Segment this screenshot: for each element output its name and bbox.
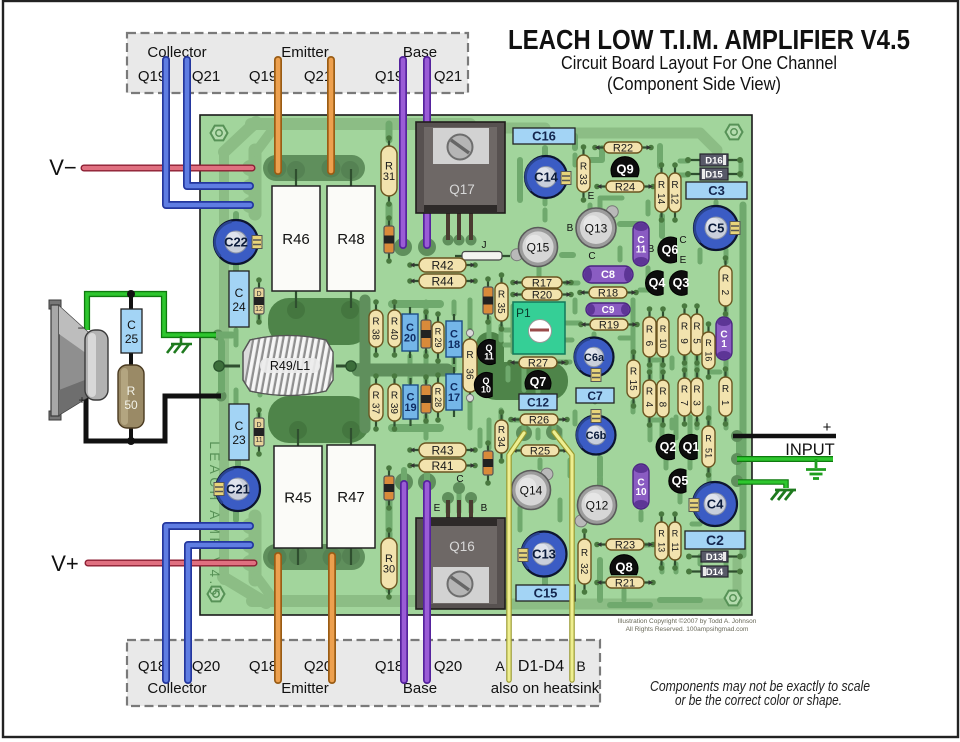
svg-text:Q19: Q19 <box>375 68 403 85</box>
svg-text:15: 15 <box>627 380 638 392</box>
svg-text:R22: R22 <box>613 142 633 154</box>
svg-text:V−: V− <box>49 155 77 180</box>
svg-text:R49/L1: R49/L1 <box>270 359 310 373</box>
svg-text:or be the correct color or sha: or be the correct color or shape. <box>675 693 842 709</box>
svg-text:37: 37 <box>370 403 381 415</box>
svg-text:R20: R20 <box>532 289 552 301</box>
svg-text:Q15: Q15 <box>527 240 550 254</box>
svg-text:R: R <box>646 324 653 335</box>
svg-text:C: C <box>456 474 463 485</box>
svg-text:Q5: Q5 <box>672 474 689 488</box>
svg-text:20: 20 <box>404 333 416 345</box>
svg-text:+: + <box>823 419 832 436</box>
svg-text:C4: C4 <box>707 497 724 512</box>
svg-text:Q14: Q14 <box>520 483 543 497</box>
svg-text:29: 29 <box>433 337 443 347</box>
svg-text:Q19: Q19 <box>249 68 277 85</box>
svg-text:R42: R42 <box>431 258 453 272</box>
svg-text:R: R <box>646 386 653 397</box>
svg-text:A: A <box>495 658 505 674</box>
svg-text:R: R <box>660 324 667 334</box>
svg-text:Collector: Collector <box>147 44 206 61</box>
svg-text:6: 6 <box>643 341 654 347</box>
svg-text:R17: R17 <box>532 277 552 289</box>
svg-text:12: 12 <box>669 193 680 205</box>
svg-text:D14: D14 <box>706 567 724 578</box>
svg-text:7: 7 <box>678 400 689 406</box>
svg-text:Q1: Q1 <box>683 440 700 454</box>
svg-text:C14: C14 <box>534 170 559 185</box>
svg-text:14: 14 <box>655 193 666 205</box>
svg-text:R18: R18 <box>598 287 618 299</box>
svg-text:5: 5 <box>691 338 702 344</box>
svg-text:1: 1 <box>721 339 727 350</box>
svg-text:LEACH AMP V4.5: LEACH AMP V4.5 <box>207 441 222 599</box>
svg-text:Q13: Q13 <box>585 221 608 235</box>
svg-text:11: 11 <box>636 244 647 255</box>
svg-text:10: 10 <box>658 338 668 348</box>
svg-text:−: − <box>77 321 84 335</box>
svg-text:Circuit Board Layout For One C: Circuit Board Layout For One Channel <box>561 53 837 73</box>
svg-text:11: 11 <box>255 437 262 444</box>
svg-text:C3: C3 <box>708 183 725 198</box>
svg-text:R: R <box>658 528 665 538</box>
svg-text:36: 36 <box>464 368 475 380</box>
svg-text:24: 24 <box>232 300 246 314</box>
svg-text:Q8: Q8 <box>615 559 632 574</box>
svg-text:Q12: Q12 <box>586 498 609 512</box>
svg-text:39: 39 <box>388 403 399 415</box>
svg-text:Emitter: Emitter <box>281 680 329 697</box>
svg-text:23: 23 <box>232 433 246 447</box>
svg-text:R43: R43 <box>431 443 453 457</box>
svg-text:C15: C15 <box>534 586 558 601</box>
svg-text:32: 32 <box>578 563 589 575</box>
svg-text:8: 8 <box>657 402 668 408</box>
svg-text:R: R <box>581 548 588 559</box>
svg-text:13: 13 <box>657 542 667 552</box>
svg-text:R: R <box>681 322 688 333</box>
svg-text:C13: C13 <box>532 547 556 562</box>
svg-text:Q18: Q18 <box>249 658 277 675</box>
svg-text:R41: R41 <box>431 459 453 473</box>
svg-text:11: 11 <box>670 542 680 551</box>
svg-text:E: E <box>434 503 441 514</box>
svg-text:Collector: Collector <box>147 680 206 697</box>
svg-text:R: R <box>498 425 505 436</box>
svg-text:V+: V+ <box>51 551 79 576</box>
svg-text:51: 51 <box>704 448 714 458</box>
svg-text:33: 33 <box>577 174 588 186</box>
svg-text:(Component Side View): (Component Side View) <box>607 74 781 94</box>
svg-text:Emitter: Emitter <box>281 44 329 61</box>
svg-text:R48: R48 <box>337 231 365 248</box>
svg-text:25: 25 <box>125 332 139 346</box>
svg-text:2: 2 <box>719 290 730 296</box>
svg-text:C: C <box>679 235 686 246</box>
svg-text:R: R <box>391 316 398 327</box>
svg-text:R27: R27 <box>528 357 548 369</box>
svg-text:17: 17 <box>448 392 460 404</box>
svg-text:34: 34 <box>495 436 506 448</box>
svg-text:31: 31 <box>383 171 395 183</box>
svg-text:R: R <box>681 385 688 396</box>
svg-text:B: B <box>481 503 488 514</box>
svg-text:19: 19 <box>404 402 416 414</box>
svg-text:12: 12 <box>255 306 263 313</box>
svg-text:40: 40 <box>388 329 399 341</box>
svg-text:P1: P1 <box>516 306 531 320</box>
svg-text:10: 10 <box>481 384 491 394</box>
svg-text:Q6: Q6 <box>662 243 679 257</box>
svg-text:Q9: Q9 <box>616 161 633 176</box>
svg-text:R: R <box>498 290 505 301</box>
svg-text:C8: C8 <box>601 269 615 281</box>
svg-text:C6a: C6a <box>584 352 605 364</box>
svg-text:1: 1 <box>719 400 730 406</box>
svg-text:R: R <box>693 322 700 333</box>
svg-text:B: B <box>567 223 574 234</box>
svg-text:R45: R45 <box>284 490 312 507</box>
svg-text:C: C <box>127 318 136 332</box>
svg-text:Illustration Copyright ©2007 b: Illustration Copyright ©2007 by Todd A. … <box>618 617 757 625</box>
svg-text:28: 28 <box>433 397 443 407</box>
svg-text:R21: R21 <box>615 577 635 589</box>
svg-text:C16: C16 <box>532 129 556 144</box>
svg-text:R47: R47 <box>337 489 365 506</box>
svg-text:Q17: Q17 <box>449 182 475 197</box>
svg-text:D16: D16 <box>705 155 722 166</box>
svg-text:D: D <box>256 422 261 429</box>
svg-text:R25: R25 <box>530 445 550 457</box>
svg-text:Q7: Q7 <box>530 375 547 389</box>
svg-text:R: R <box>672 528 679 538</box>
svg-text:R: R <box>435 387 442 397</box>
svg-text:Q20: Q20 <box>304 658 332 675</box>
svg-text:Q18: Q18 <box>375 658 403 675</box>
svg-text:R: R <box>435 326 442 336</box>
svg-text:R: R <box>658 180 665 191</box>
svg-text:All Rights Reserved. 100ampsi: All Rights Reserved. 100ampsihgmad.com <box>626 626 749 633</box>
svg-text:R: R <box>722 273 729 284</box>
svg-text:R26: R26 <box>529 414 549 426</box>
svg-text:D1-D4: D1-D4 <box>518 658 564 675</box>
svg-text:R: R <box>127 384 136 398</box>
svg-text:10: 10 <box>635 487 647 498</box>
svg-text:Q20: Q20 <box>192 658 220 675</box>
svg-text:R: R <box>466 350 473 361</box>
svg-text:+: + <box>78 393 85 407</box>
svg-text:R46: R46 <box>282 231 310 248</box>
svg-text:R24: R24 <box>615 181 635 193</box>
svg-text:R: R <box>705 338 712 348</box>
svg-text:C2: C2 <box>706 532 724 548</box>
svg-text:LEACH LOW T.I.M. AMPLIFIER V4.: LEACH LOW T.I.M. AMPLIFIER V4.5 <box>508 24 910 55</box>
svg-text:Q18: Q18 <box>138 658 166 675</box>
svg-text:R: R <box>722 384 729 395</box>
svg-text:D13: D13 <box>706 552 723 563</box>
svg-text:C: C <box>235 286 244 300</box>
svg-text:Q4: Q4 <box>649 276 666 290</box>
svg-text:C21: C21 <box>226 482 250 497</box>
svg-text:C7: C7 <box>587 389 603 403</box>
svg-text:R44: R44 <box>431 274 453 288</box>
svg-text:Q20: Q20 <box>434 658 462 675</box>
svg-text:R: R <box>580 161 587 172</box>
svg-text:3: 3 <box>691 400 702 406</box>
svg-text:C: C <box>588 251 595 262</box>
svg-text:9: 9 <box>678 338 689 344</box>
svg-text:C12: C12 <box>527 395 549 409</box>
svg-text:C: C <box>235 419 244 433</box>
svg-text:R: R <box>372 316 379 327</box>
svg-text:R19: R19 <box>599 319 619 331</box>
svg-text:C6b: C6b <box>586 430 607 442</box>
svg-text:35: 35 <box>495 303 506 315</box>
svg-text:B: B <box>576 658 585 674</box>
svg-text:E: E <box>680 255 687 266</box>
svg-text:D15: D15 <box>705 169 723 180</box>
svg-text:C5: C5 <box>708 221 725 236</box>
svg-text:E: E <box>588 191 595 202</box>
svg-text:C9: C9 <box>602 305 615 316</box>
svg-text:D: D <box>256 291 261 298</box>
svg-text:R: R <box>659 386 666 397</box>
svg-text:4: 4 <box>643 402 654 408</box>
svg-text:Q21: Q21 <box>192 68 220 85</box>
svg-text:R23: R23 <box>615 539 635 551</box>
svg-text:R: R <box>705 433 712 443</box>
svg-text:Base: Base <box>403 680 437 697</box>
svg-text:R: R <box>372 390 379 401</box>
svg-text:R: R <box>693 385 700 396</box>
svg-text:11: 11 <box>484 351 494 361</box>
svg-text:16: 16 <box>704 351 714 361</box>
svg-text:30: 30 <box>383 564 395 576</box>
svg-text:Q16: Q16 <box>449 539 475 554</box>
svg-text:also on heatsink: also on heatsink <box>491 680 600 697</box>
svg-text:Base: Base <box>403 44 437 61</box>
svg-text:38: 38 <box>370 329 381 341</box>
svg-text:R: R <box>391 390 398 401</box>
svg-text:J: J <box>482 240 487 251</box>
svg-text:Q3: Q3 <box>673 276 690 290</box>
svg-text:Q2: Q2 <box>660 440 677 454</box>
svg-text:50: 50 <box>124 398 138 412</box>
svg-text:18: 18 <box>448 339 460 351</box>
svg-text:Q19: Q19 <box>138 68 166 85</box>
svg-text:C22: C22 <box>224 235 248 250</box>
svg-text:R: R <box>671 180 678 191</box>
svg-text:R: R <box>630 367 637 378</box>
svg-text:Q21: Q21 <box>434 68 462 85</box>
